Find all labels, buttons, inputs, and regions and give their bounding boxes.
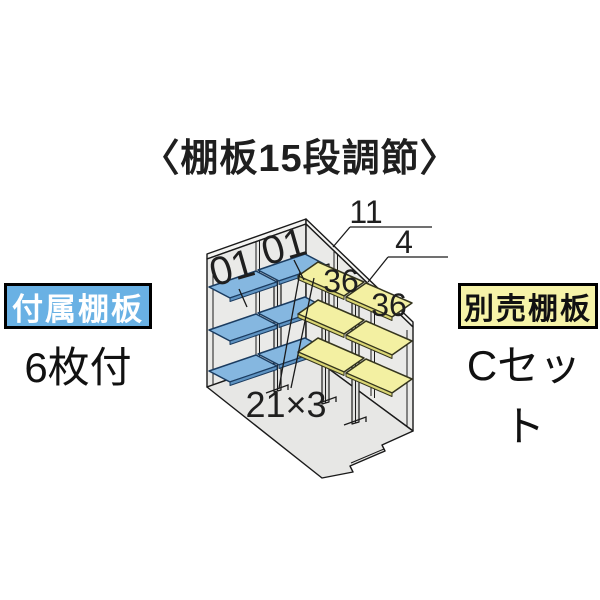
optional-shelf-set: Cセット	[448, 332, 600, 454]
optional-shelf-label: 別売棚板	[464, 284, 592, 328]
attached-shelf-label: 付属棚板	[12, 284, 144, 329]
callout-4-leader	[368, 257, 388, 282]
callout-posts: 21×3	[245, 384, 326, 425]
callout-back-panel-2: 4	[395, 224, 413, 260]
callout-right-shelf-1: 36	[323, 263, 359, 299]
attached-shelf-label-box: 付属棚板	[4, 283, 152, 329]
callout-right-shelf-2: 36	[371, 287, 407, 323]
attached-shelf-count: 6枚付	[2, 334, 154, 395]
callout-11-leader	[333, 227, 350, 247]
optional-shelf-label-box: 別売棚板	[458, 283, 598, 329]
callout-back-panel-1: 11	[349, 194, 382, 230]
product-diagram: 〈棚板15段調節〉	[0, 0, 600, 600]
